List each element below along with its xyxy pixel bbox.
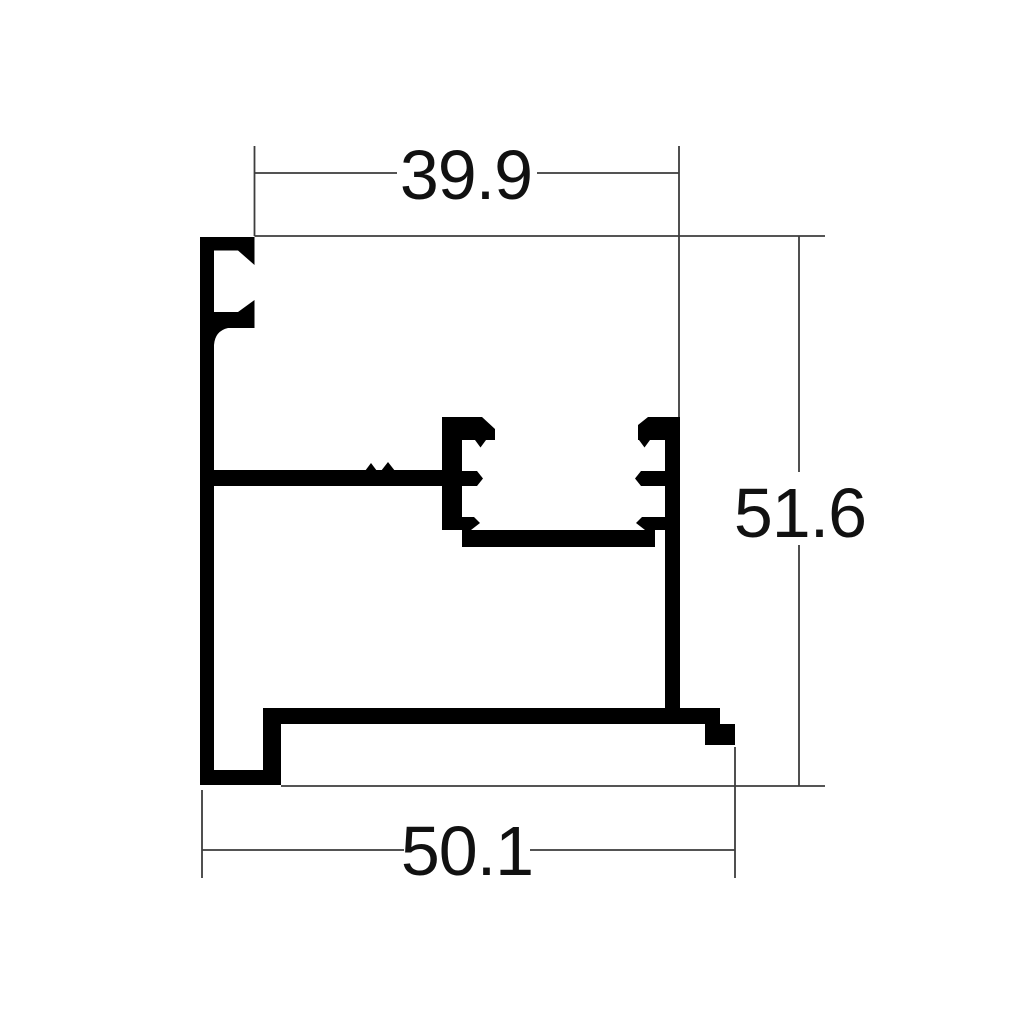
profile-left-tower-middle-tab	[442, 471, 483, 486]
profile-left-tower-bottom-tab	[442, 517, 480, 530]
profile-bottom-shelf	[263, 708, 720, 724]
profile-middle-web	[214, 470, 443, 486]
dimension-lines	[202, 146, 825, 878]
profile-cross-section	[200, 237, 735, 785]
profile-bottom-right-foot	[705, 724, 735, 745]
profile-bottom-left-bar	[200, 770, 281, 785]
profile-bottom-left-riser	[263, 708, 281, 772]
dim-bottom-width-label: 50.1	[401, 812, 533, 890]
drawing-canvas: 39.9 51.6 50.1	[0, 0, 1024, 1024]
profile-channel-lip-with-hook	[214, 300, 255, 345]
technical-drawing: 39.9 51.6 50.1	[0, 0, 1024, 1024]
profile-right-tower-top-hook	[638, 417, 680, 448]
profile-left-wall	[200, 237, 214, 785]
dim-right-height-label: 51.6	[734, 474, 866, 552]
dim-top-width-label: 39.9	[400, 136, 532, 214]
profile-right-tower-bottom-tab	[636, 517, 665, 530]
profile-web-serration-tooth-1	[365, 463, 377, 471]
profile-right-wall	[665, 417, 680, 710]
profile-screw-channel-floor	[462, 530, 655, 547]
profile-right-tower-middle-tab	[635, 471, 665, 486]
dimension-labels: 39.9 51.6 50.1	[400, 136, 866, 890]
profile-web-serration-tooth-2	[381, 462, 395, 471]
